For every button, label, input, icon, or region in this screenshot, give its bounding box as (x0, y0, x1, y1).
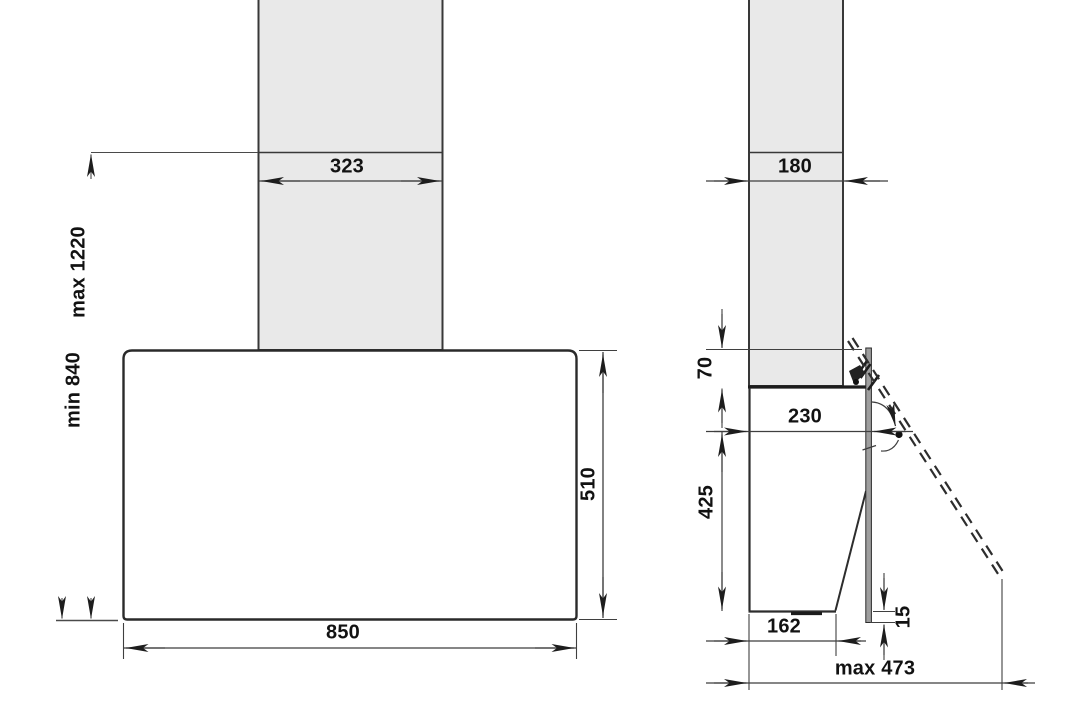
dim-label-glass-top-offset: 70 (695, 357, 718, 380)
dim-label-chimney-width: 323 (330, 156, 364, 179)
front-view (56, 0, 617, 659)
technical-drawing: max 1220 min 840 323 850 510 180 70 230 … (0, 0, 1066, 709)
dim-label-depth-open-max: max 473 (835, 658, 915, 681)
dim-label-bottom-depth: 162 (767, 616, 801, 639)
side-view (706, 0, 1035, 690)
front-hood-body (124, 351, 577, 620)
dim-label-depth-closed: 230 (788, 406, 822, 429)
drawing-linework (0, 0, 1066, 709)
dim-label-body-width: 850 (326, 622, 360, 645)
dim-label-min-height: min 840 (63, 352, 86, 428)
dimension-glass-bottom-offset (870, 573, 895, 660)
dim-label-body-height: 510 (578, 467, 601, 501)
rotation-arrow-tail (881, 440, 899, 451)
dim-label-glass-bottom-offset: 15 (893, 606, 916, 629)
hinge-pivot-dot (853, 379, 859, 385)
side-chimney (749, 0, 843, 386)
dim-label-rear-height: 425 (696, 485, 719, 519)
side-body-slant (836, 491, 867, 611)
rotation-arrow (872, 402, 896, 426)
dim-label-chimney-depth: 180 (778, 156, 812, 179)
dim-label-max-height: max 1220 (68, 226, 91, 318)
